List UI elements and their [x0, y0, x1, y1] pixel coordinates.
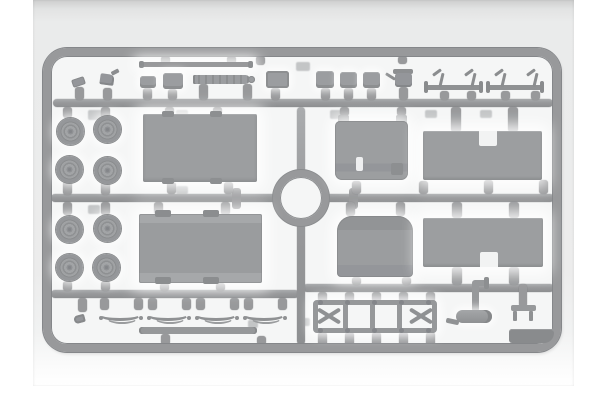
part-leaf-spring: [195, 309, 237, 321]
axle-steering-arm: [463, 70, 478, 87]
part-leaf-spring: [99, 309, 141, 321]
part-wheel: [56, 156, 83, 183]
part-block: [363, 72, 380, 88]
chassis-stud: [318, 328, 323, 333]
part-wheel: [94, 215, 121, 242]
panel-tab: [203, 277, 219, 284]
panel-tab: [210, 178, 222, 184]
chassis-stud: [372, 328, 377, 333]
chassis-stud: [426, 300, 431, 305]
parts-layer: [0, 0, 600, 400]
chassis-stud: [318, 300, 323, 305]
chassis-stud: [372, 300, 377, 305]
part-wheel: [56, 254, 83, 281]
cab-floor-detail: [391, 163, 403, 175]
sprue: [0, 0, 600, 400]
part-block: [140, 76, 156, 88]
part-wheel: [56, 216, 83, 243]
roof-panel-upper-cutout: [479, 131, 497, 146]
axle-steering-arm: [525, 70, 540, 87]
chassis-stud: [399, 300, 404, 305]
panel-tab: [210, 111, 222, 117]
axle-steering-arm: [493, 70, 508, 87]
part-block: [316, 71, 334, 88]
panel-tab: [162, 178, 174, 184]
screenshot-root: [0, 0, 600, 400]
roof-panel-lower-cutout: [480, 252, 498, 267]
chassis-stud: [426, 328, 431, 333]
cab-floor-slot: [356, 157, 363, 171]
axle-steering-arm: [431, 70, 446, 87]
axle-end-cap: [486, 81, 490, 93]
panel-tab: [203, 210, 219, 217]
axle-end-cap: [424, 81, 428, 93]
part-block: [340, 72, 357, 88]
part-wheel: [57, 118, 84, 145]
part-wheel: [94, 116, 121, 143]
part-block: [163, 73, 183, 89]
part-leaf-spring: [147, 309, 189, 321]
chassis-stud: [345, 300, 350, 305]
part-wheel: [93, 254, 120, 281]
panel-tab: [162, 111, 174, 117]
chassis-stud: [399, 328, 404, 333]
axle-end-cap: [479, 81, 483, 93]
part-leaf-spring: [243, 309, 285, 321]
panel-tab: [155, 277, 171, 284]
chassis-stud: [345, 328, 350, 333]
panel-tab: [155, 210, 171, 217]
axle-end-cap: [540, 81, 544, 93]
part-wheel: [94, 157, 121, 184]
